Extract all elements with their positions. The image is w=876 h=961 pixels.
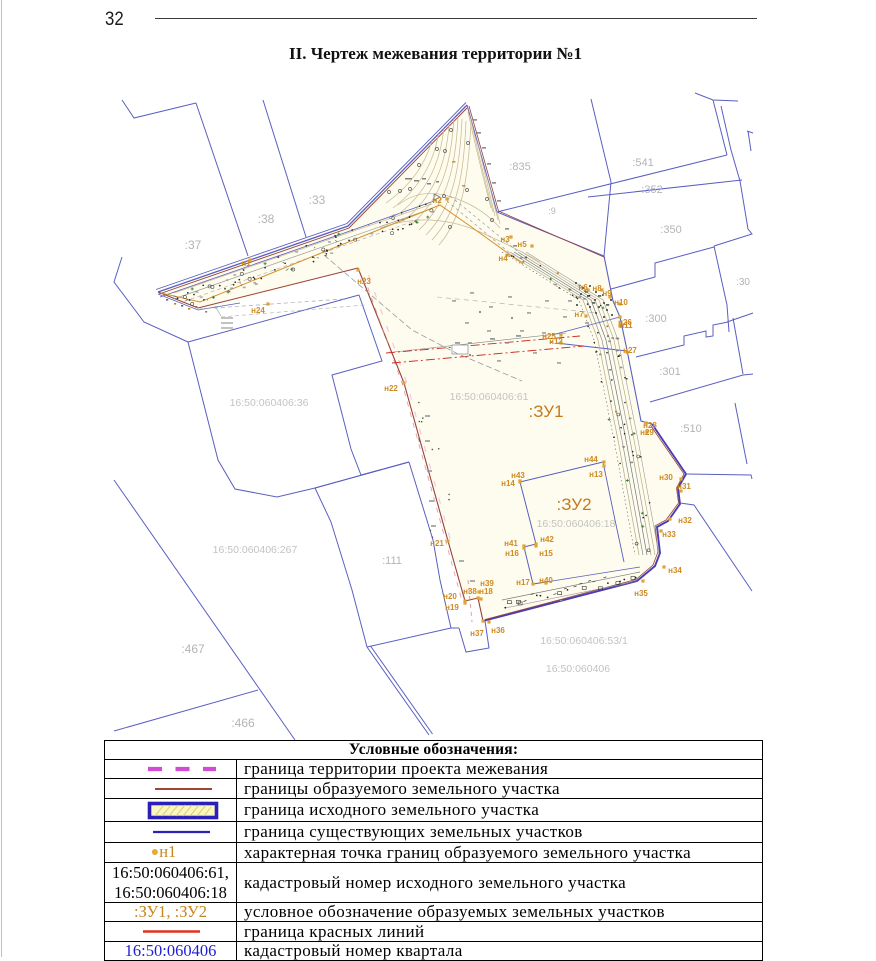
svg-text:н40: н40 xyxy=(539,576,553,585)
svg-text:н35: н35 xyxy=(634,589,648,598)
svg-text::300: :300 xyxy=(645,313,666,325)
svg-text:16:50:060406: 16:50:060406 xyxy=(546,663,610,675)
svg-text:н34: н34 xyxy=(668,566,682,575)
svg-text:н30: н30 xyxy=(659,473,673,482)
svg-text:н20: н20 xyxy=(443,592,457,601)
svg-text:н31: н31 xyxy=(677,482,691,491)
svg-text:н36: н36 xyxy=(491,626,505,635)
svg-text::111: :111 xyxy=(382,555,402,567)
svg-text:н24: н24 xyxy=(251,306,265,315)
svg-text:н18: н18 xyxy=(479,587,493,596)
svg-text::352: :352 xyxy=(641,184,662,196)
svg-text:н33: н33 xyxy=(662,530,676,539)
svg-text::350: :350 xyxy=(660,224,681,236)
svg-text::37: :37 xyxy=(185,238,202,252)
svg-text:н44: н44 xyxy=(584,455,598,464)
svg-text:н13: н13 xyxy=(589,470,603,479)
svg-text:н37: н37 xyxy=(470,629,484,638)
svg-text:16:50:060406:36: 16:50:060406:36 xyxy=(230,397,309,409)
svg-text:н1: н1 xyxy=(241,259,251,268)
svg-text:16:50:060406:53/1: 16:50:060406:53/1 xyxy=(540,635,628,647)
svg-text::33: :33 xyxy=(309,193,326,207)
svg-text:н7: н7 xyxy=(574,310,584,319)
svg-text:н27: н27 xyxy=(623,346,637,355)
svg-text::30: :30 xyxy=(736,277,750,288)
svg-text:н8: н8 xyxy=(592,284,602,293)
svg-text::466: :466 xyxy=(231,716,255,730)
svg-text:н21: н21 xyxy=(430,539,444,548)
svg-text::510: :510 xyxy=(680,423,701,435)
svg-text::467: :467 xyxy=(181,642,205,656)
svg-text:16:50:060406:61: 16:50:060406:61 xyxy=(450,391,529,403)
svg-text:н19: н19 xyxy=(445,603,459,612)
svg-text::ЗУ2: :ЗУ2 xyxy=(556,495,591,514)
svg-text:н15: н15 xyxy=(539,549,553,558)
svg-text:н10: н10 xyxy=(614,298,628,307)
svg-text::835: :835 xyxy=(509,161,530,173)
svg-text:н3: н3 xyxy=(500,235,510,244)
svg-text:н22: н22 xyxy=(384,384,398,393)
svg-text:н2: н2 xyxy=(432,196,442,205)
svg-text:н17: н17 xyxy=(516,578,530,587)
svg-text:н41: н41 xyxy=(504,539,518,548)
svg-text:н14: н14 xyxy=(501,479,515,488)
svg-text:н6: н6 xyxy=(578,283,588,292)
svg-text:н26: н26 xyxy=(618,318,632,327)
svg-text:н39: н39 xyxy=(480,579,494,588)
svg-text:н9: н9 xyxy=(602,289,612,298)
svg-text:н43: н43 xyxy=(511,471,525,480)
svg-text:н25: н25 xyxy=(542,332,556,341)
svg-text::ЗУ1: :ЗУ1 xyxy=(528,402,563,421)
svg-text:н5: н5 xyxy=(517,240,527,249)
svg-text:16:50:060406:18: 16:50:060406:18 xyxy=(537,518,616,530)
svg-text::541: :541 xyxy=(632,157,653,169)
svg-text::9: :9 xyxy=(548,206,556,216)
svg-text::38: :38 xyxy=(258,212,275,226)
svg-text:н32: н32 xyxy=(678,516,692,525)
svg-text:н23: н23 xyxy=(357,277,371,286)
svg-text:н42: н42 xyxy=(540,535,554,544)
svg-text:н4: н4 xyxy=(498,254,508,263)
svg-text:н29: н29 xyxy=(640,428,654,437)
svg-text:н16: н16 xyxy=(505,549,519,558)
svg-text::301: :301 xyxy=(659,366,680,378)
svg-text:н38: н38 xyxy=(463,587,477,596)
svg-text:16:50:060406:267: 16:50:060406:267 xyxy=(213,544,298,556)
